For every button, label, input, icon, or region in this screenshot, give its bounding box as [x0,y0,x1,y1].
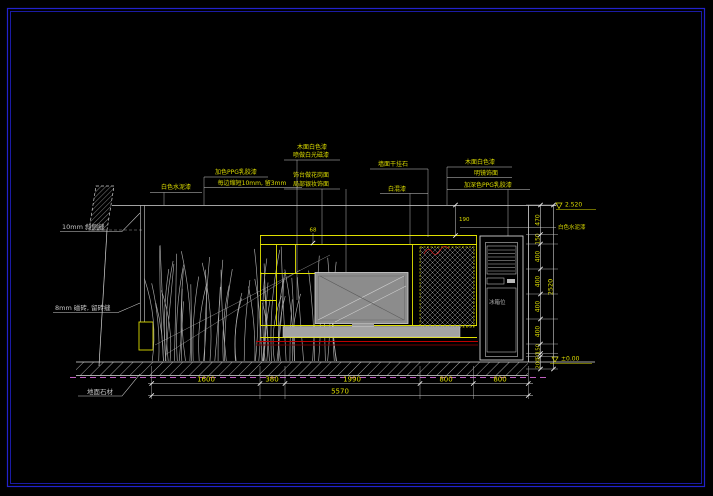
cad-canvas: 冰箱位 白色水泥漆 加色PPG乳胶漆 每边缩短10mm, 留3mm 木面白色漆 [0,0,713,496]
tall-cabinet: 冰箱位 [480,236,523,360]
dim-r-400a: 400 [535,251,542,263]
dim-total-2520: 2520 [547,279,555,296]
grass-plants [144,245,336,361]
drawer [487,278,504,284]
planter-box [139,322,153,350]
label-wall-finish-right: 白色水泥漆 [558,223,586,231]
level-triangle-top [556,203,562,209]
dim-total-5570: 5570 [331,388,349,396]
cabinet-label: 冰箱位 [489,298,506,306]
cad-drawing-svg: 冰箱位 白色水泥漆 加色PPG乳胶漆 每边缩短10mm, 留3mm 木面白色漆 [0,0,713,496]
dim-800b: 800 [493,376,506,384]
dim-r-400b: 400 [535,276,542,288]
label-right1-line1: 墙面干挂石 [378,160,408,168]
label-left-top: 10mm 斜侧缝 [62,222,105,231]
dim-r-200: 200 [536,358,542,369]
level-top: 2.520 [565,202,582,209]
page-frame [8,9,705,487]
label-left-mid: 8mm 磁砖, 留砖缝 [55,303,111,312]
label-mid2-line1: 饰台做花岗面 [293,171,329,179]
dimension-bottom: 1600 380 1990 800 800 5570 [148,376,533,396]
floating-shelf [283,327,460,338]
level-bottom: ±0.00 [561,356,580,363]
hatched-panel [420,247,474,328]
left-wall [89,186,153,366]
label-mid2-line2: 局部银妆饰面 [293,180,329,188]
label-far2: 明镜饰面 [474,169,498,177]
cabinet-door [487,288,516,352]
label-top1: 白色水泥漆 [161,183,191,191]
dim-190: 190 [459,217,470,223]
dim-68: 68 [310,228,317,234]
dim-380: 380 [265,376,278,384]
handle [507,279,515,283]
label-far3: 加深色PPG乳胶漆 [464,181,512,189]
ground-hatch [70,362,595,378]
label-floor: 地面石材 [87,387,114,396]
label-right1-line2: 白混漆 [388,185,406,193]
tv [315,273,408,327]
dimension-small: 190 68 [310,205,470,236]
level-triangle-bottom [552,357,558,362]
dim-1990: 1990 [343,376,361,384]
dim-1600: 1600 [197,376,215,384]
annotation-labels: 白色水泥漆 加色PPG乳胶漆 每边缩短10mm, 留3mm 木面白色漆 喷做白光… [53,143,586,396]
dim-r-470: 470 [535,214,542,226]
label-top2-line2: 每边缩短10mm, 留3mm [218,179,287,187]
label-mid1-line1: 木面白色漆 [297,143,327,151]
dim-r-400c: 400 [535,301,542,313]
label-mid1-line2: 喷做白光磁漆 [293,151,329,159]
label-top2-line1: 加色PPG乳胶漆 [215,168,257,176]
dim-800a: 800 [439,376,452,384]
tv-stand [352,324,374,327]
dimension-right: 470 150 400 400 400 400 150 50 200 2520 [535,205,555,369]
elevation-drawing: 冰箱位 [70,186,595,378]
dim-r-400d: 400 [535,326,542,338]
label-far1: 木面白色漆 [465,158,495,166]
